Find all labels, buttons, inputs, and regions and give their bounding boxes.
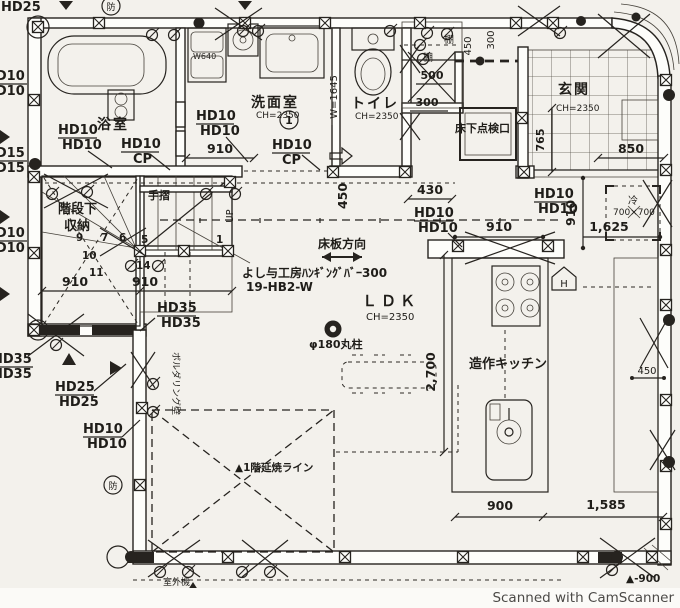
- label-level-mark: ▲-900: [626, 573, 660, 585]
- dim-910-stair-r: 910: [132, 274, 158, 289]
- hd-edge35-1: HD35: [0, 352, 32, 367]
- stair-step-1: 1: [216, 234, 223, 246]
- stair-step-7: 7: [101, 232, 108, 244]
- label-fridge: 冷: [628, 194, 638, 207]
- label-entrance-ch: CH=2350: [556, 104, 600, 114]
- hd-edge15-2: HD15: [0, 161, 25, 176]
- dim-850: 850: [618, 141, 644, 156]
- label-shelf-side: 棚: [423, 51, 433, 64]
- dim-2700: 2,700: [423, 352, 438, 392]
- round-column-center: [330, 326, 336, 332]
- dim-765: 765: [534, 129, 547, 152]
- label-column: φ180丸柱: [309, 337, 363, 351]
- hd-low-1: HD10: [83, 422, 123, 437]
- label-fire-mark-top: 防: [106, 1, 115, 13]
- hd-mid-1: HD25: [55, 380, 95, 395]
- deck-area: [152, 410, 334, 552]
- label-opening-width: W=1645: [329, 75, 340, 119]
- camscanner-watermark: Scanned with CamScanner: [492, 590, 674, 606]
- stair-step-5: 5: [141, 234, 148, 246]
- label-shelf-top: 棚: [444, 33, 454, 46]
- label-outdoor-unit: 室外機: [163, 576, 190, 588]
- label-handrail: 手摺: [148, 188, 170, 202]
- hd-stair-1: HD35: [157, 301, 197, 316]
- stair-step-6: 6: [119, 232, 126, 244]
- floor-plan-drawing: 浴室 洗面室 CH=2350 トイレ CH=2350 玄関 CH=2350 ＬＤ…: [0, 0, 680, 608]
- stair-step-11: 11: [89, 267, 104, 279]
- label-floor-direction: 床板方向: [318, 236, 366, 251]
- dim-450-toilet: 450: [335, 183, 350, 209]
- hd-25-corner: HD25: [1, 0, 41, 15]
- vanity-icon: [260, 26, 324, 78]
- hd-stair-2: HD35: [161, 316, 201, 331]
- outdoor-unit-icon: [155, 565, 278, 578]
- label-stair-storage-1: 階段下: [58, 201, 97, 217]
- label-kitchen: 造作キッチン: [469, 356, 547, 372]
- label-fridge-size: 700×700: [613, 208, 655, 218]
- hd-edge10b-1: HD10: [0, 226, 25, 241]
- hd-edge35-2: HD35: [0, 367, 32, 382]
- hd-low-2: HD10: [87, 437, 127, 452]
- dining-table-dashed: [342, 355, 436, 393]
- hd-ldk-2: HD10: [418, 221, 458, 236]
- hd-edge15-1: HD15: [0, 146, 25, 161]
- label-washroom: 洗面室: [251, 94, 299, 111]
- hd-hall-2: HD10: [538, 202, 578, 217]
- label-bathroom: 浴室: [97, 116, 129, 133]
- label-hanging-bar: よし与工房ﾊﾝｷﾞﾝｸﾞﾊﾞｰ300: [242, 265, 387, 280]
- label-fire-mark-left: 防: [108, 480, 117, 492]
- hd-bath-cp-2: CP: [133, 152, 152, 167]
- kitchen-island: [452, 258, 548, 492]
- label-circled-one: 1: [285, 114, 293, 127]
- floor-plan-scan: 浴室 洗面室 CH=2350 トイレ CH=2350 玄関 CH=2350 ＬＤ…: [0, 0, 680, 608]
- dim-1625: 1,625: [589, 219, 629, 234]
- hd-hall-1: HD10: [534, 187, 574, 202]
- hd-bath-cp-1: HD10: [121, 137, 161, 152]
- hd-wash-2: HD10: [200, 124, 240, 139]
- right-triangle-icon: [0, 210, 10, 224]
- hd-wash-cp-2: CP: [282, 153, 301, 168]
- label-toilet: トイレ: [351, 96, 399, 112]
- label-toilet-ch: CH=2350: [355, 112, 399, 122]
- right-triangle-icon: [0, 287, 10, 301]
- dim-1585: 1,585: [586, 497, 626, 512]
- stair-step-14: 14: [136, 260, 151, 272]
- toilet-icon: [352, 28, 394, 95]
- label-basin-width: W640: [193, 52, 216, 61]
- hd-bath-1: HD10: [58, 123, 98, 138]
- label-hanging-bar-model: 19-HB2-W: [246, 280, 313, 294]
- dim-900: 900: [487, 498, 513, 513]
- label-washroom-ch: CH=2350: [256, 111, 300, 121]
- floor-direction-arrow-icon: [322, 252, 362, 262]
- down-triangle-icon: [59, 1, 73, 10]
- stair-step-10: 10: [82, 250, 97, 262]
- bathtub-icon: [48, 36, 166, 120]
- hd-wash-1: HD10: [196, 109, 236, 124]
- label-entrance: 玄関: [558, 81, 590, 98]
- hd-edge10a-1: HD10: [0, 69, 25, 84]
- label-inspection-hatch: 床下点検口: [455, 121, 510, 135]
- dim-430: 430: [417, 182, 443, 197]
- up-triangle-icon: [62, 353, 76, 365]
- dim-300-shelf: 300: [416, 96, 439, 109]
- labels: 浴室 洗面室 CH=2350 トイレ CH=2350 玄関 CH=2350 ＬＤ…: [0, 0, 660, 588]
- label-up: UP: [225, 209, 236, 222]
- label-hood-mark: H: [560, 279, 568, 290]
- hd-wash-cp-1: HD10: [272, 138, 312, 153]
- dim-300-shelf-v: 300: [486, 30, 497, 49]
- dim-450-shelf: 450: [463, 36, 474, 55]
- dim-500-shelf: 500: [421, 69, 444, 82]
- hd-mid-2: HD25: [59, 395, 99, 410]
- right-triangle-icon: [0, 130, 10, 144]
- label-ldk: ＬＤＫ: [362, 292, 419, 310]
- dim-450-wall: 450: [637, 366, 656, 377]
- stair-step-9: 9: [76, 232, 83, 244]
- hd-edge10a-2: HD10: [0, 84, 25, 99]
- label-bouldering-wall: ボルダリング壁: [170, 352, 182, 415]
- label-fire-line: ▲1階延焼ライン: [235, 461, 313, 474]
- hd-bath-2: HD10: [62, 138, 102, 153]
- dim-910-ldk-h: 910: [486, 219, 512, 234]
- label-ldk-ch: CH=2350: [366, 312, 414, 323]
- down-triangle-icon: [238, 1, 252, 10]
- hd-edge10b-2: HD10: [0, 241, 25, 256]
- dim-910-wash: 910: [207, 141, 233, 156]
- watermark-strip: Scanned with CamScanner: [0, 588, 680, 608]
- hd-ldk-1: HD10: [414, 206, 454, 221]
- dim-910-stair-l: 910: [62, 274, 88, 289]
